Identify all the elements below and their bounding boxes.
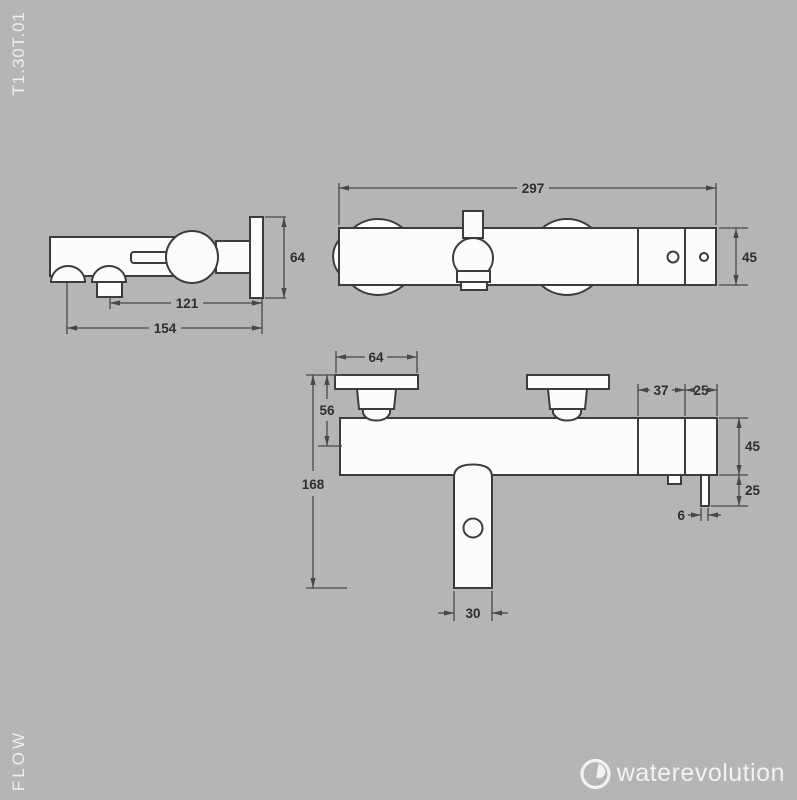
front-view: [335, 375, 717, 588]
front-drain-tab: [668, 475, 681, 484]
dim-label-side-spout-to-wall: 154: [154, 321, 177, 336]
dim-label-top-total-width: 297: [522, 181, 545, 196]
dim-label-front-handle-height: 56: [319, 403, 335, 418]
top-diverter-stem: [463, 211, 483, 238]
drawing-sheet: T1.30T.01 FLOW 64: [0, 0, 797, 800]
front-right-handle-top: [527, 375, 609, 389]
front-outlet-pipe: [701, 475, 709, 506]
front-left-handle-foot: [363, 409, 390, 421]
top-diverter-base: [457, 271, 490, 282]
logo-text: waterevolution: [617, 759, 785, 788]
side-view: [50, 217, 263, 298]
dim-label-front-outlet-width: 6: [677, 508, 685, 523]
front-left-handle-top: [335, 375, 418, 389]
front-spout-hole: [464, 519, 483, 538]
technical-drawing: 64 121 154: [0, 0, 797, 800]
dim-label-front-inlet-to-edge: 25: [693, 383, 709, 398]
dim-label-front-handle-width: 64: [368, 350, 384, 365]
side-diverter-outlet-block: [97, 282, 122, 297]
dim-label-front-spout-width: 30: [465, 606, 480, 621]
top-body: [339, 228, 716, 285]
dim-label-front-total-height: 168: [302, 477, 325, 492]
product-code-label: T1.30T.01: [9, 11, 29, 96]
top-hole-large: [668, 252, 679, 263]
dim-label-top-depth: 45: [742, 250, 758, 265]
dim-label-front-outlet-length: 25: [745, 483, 761, 498]
logo: waterevolution: [577, 755, 785, 792]
top-diverter-foot: [461, 282, 487, 290]
dim-label-side-plate-height: 64: [290, 250, 306, 265]
side-knob: [166, 231, 218, 283]
front-left-handle-stem: [357, 389, 396, 409]
side-connector: [216, 241, 250, 273]
top-view: [333, 211, 716, 295]
front-right-handle-foot: [553, 409, 581, 421]
dim-label-side-diverter-to-wall: 121: [176, 296, 199, 311]
side-wall-plate: [250, 217, 263, 298]
waterdrop-icon: [577, 755, 614, 792]
brand-label: FLOW: [9, 730, 29, 791]
front-body: [340, 418, 717, 475]
dim-label-front-inlet-spacing: 37: [653, 383, 668, 398]
top-hole-small: [700, 253, 708, 261]
front-right-handle-stem: [548, 389, 587, 409]
side-lever: [131, 252, 169, 263]
dim-label-front-body-height: 45: [745, 439, 761, 454]
